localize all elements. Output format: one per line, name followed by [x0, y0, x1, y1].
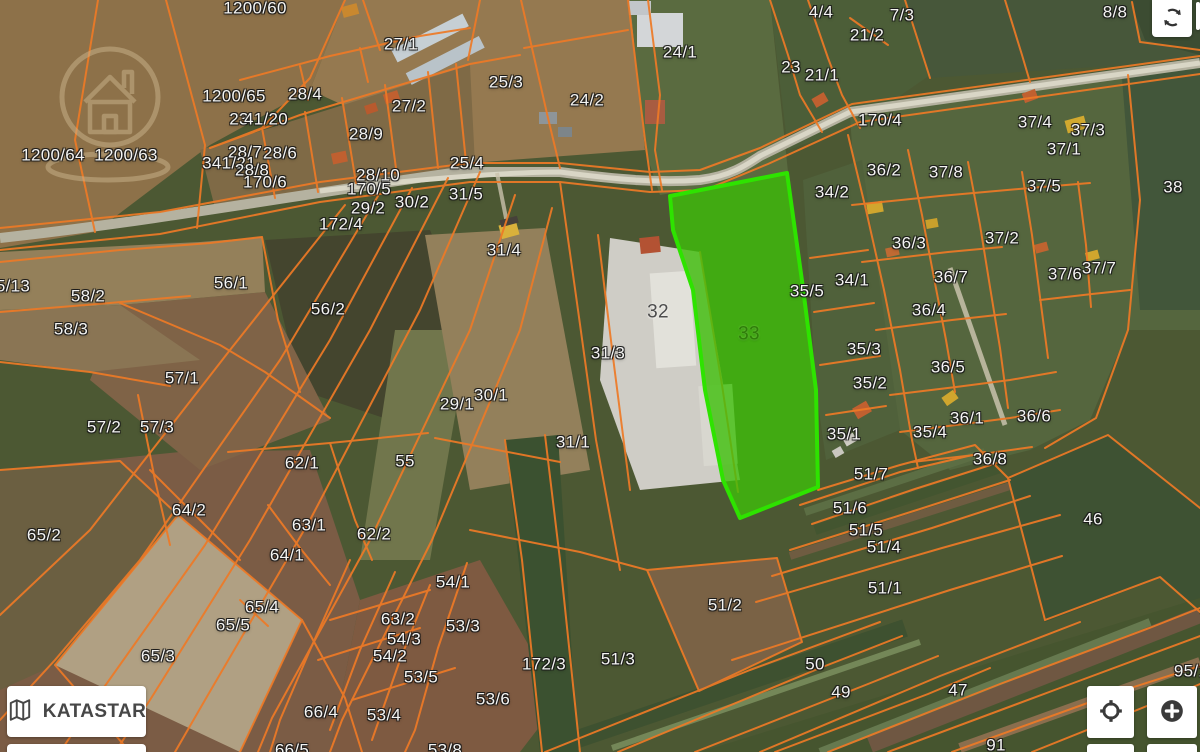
refresh-icon — [1161, 6, 1184, 32]
refresh-button[interactable] — [1152, 0, 1192, 37]
zoom-in-button[interactable] — [1147, 686, 1197, 738]
katastar-second-button-partial[interactable] — [7, 744, 146, 752]
map-canvas[interactable] — [0, 0, 1200, 752]
locate-button[interactable] — [1087, 686, 1134, 738]
map-viewport: 1200/6027/125/324/224/14/47/38/821/22321… — [0, 0, 1200, 752]
edge-button-partial[interactable] — [1196, 2, 1200, 30]
locate-second-button-partial[interactable] — [1087, 744, 1134, 752]
katastar-button[interactable]: KATASTAR — [7, 686, 146, 737]
satellite-fields — [0, 0, 1200, 752]
zoom-second-button-partial[interactable] — [1147, 744, 1197, 752]
locate-icon — [1098, 698, 1124, 727]
plus-icon — [1159, 698, 1185, 727]
map-icon — [7, 697, 33, 726]
katastar-label: KATASTAR — [43, 702, 146, 721]
